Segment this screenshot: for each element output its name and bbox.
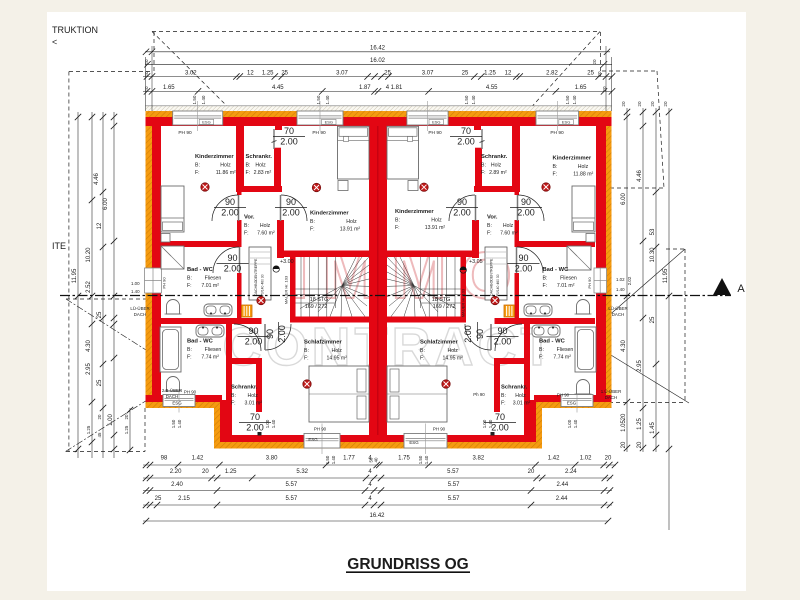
svg-text:1.40: 1.40 bbox=[573, 419, 578, 428]
svg-text:1.50: 1.50 bbox=[316, 95, 321, 104]
svg-text:2.44: 2.44 bbox=[557, 482, 569, 488]
svg-text:20: 20 bbox=[621, 441, 627, 448]
svg-text:70: 70 bbox=[495, 412, 505, 422]
svg-text:B:: B: bbox=[481, 163, 486, 169]
svg-text:Holz: Holz bbox=[220, 163, 231, 169]
svg-text:F:: F: bbox=[244, 231, 249, 237]
svg-text:+3.00: +3.00 bbox=[280, 259, 294, 265]
svg-text:TRUKTION: TRUKTION bbox=[52, 25, 98, 35]
svg-text:Holz: Holz bbox=[578, 164, 589, 170]
svg-text:169 / 272: 169 / 272 bbox=[433, 304, 455, 310]
svg-text:20: 20 bbox=[144, 59, 149, 65]
svg-text:20: 20 bbox=[650, 101, 655, 107]
svg-text:PH 90: PH 90 bbox=[587, 277, 592, 289]
svg-text:90: 90 bbox=[518, 253, 528, 263]
svg-text:40: 40 bbox=[374, 457, 379, 462]
svg-text:25: 25 bbox=[97, 311, 103, 318]
svg-text:3.80: 3.80 bbox=[266, 456, 278, 462]
svg-text:5.57: 5.57 bbox=[286, 482, 298, 488]
svg-text:DACH: DACH bbox=[134, 312, 146, 317]
svg-text:+3.05: +3.05 bbox=[469, 259, 483, 265]
svg-text:90: 90 bbox=[497, 326, 507, 336]
svg-text:1.50: 1.50 bbox=[565, 95, 570, 104]
svg-text:1.00: 1.00 bbox=[482, 419, 487, 428]
svg-text:F:: F: bbox=[187, 355, 192, 361]
svg-text:7.74 m²: 7.74 m² bbox=[553, 355, 571, 361]
svg-text:1.40: 1.40 bbox=[424, 455, 429, 464]
svg-text:1.40: 1.40 bbox=[177, 419, 182, 428]
svg-text:3.01 m²: 3.01 m² bbox=[245, 401, 263, 407]
svg-text:1.40: 1.40 bbox=[325, 95, 330, 104]
svg-text:3.07: 3.07 bbox=[336, 70, 348, 76]
svg-text:DACHBODENTREPPE: DACHBODENTREPPE bbox=[490, 258, 494, 296]
svg-text:F:: F: bbox=[501, 401, 506, 407]
svg-text:169 / 272: 169 / 272 bbox=[305, 304, 327, 310]
svg-text:PH 90: PH 90 bbox=[312, 130, 326, 136]
svg-text:GRUNDRISS OG: GRUNDRISS OG bbox=[347, 556, 468, 573]
svg-text:ITE: ITE bbox=[52, 241, 66, 251]
svg-text:7.01 m²: 7.01 m² bbox=[557, 283, 575, 289]
svg-text:2.00: 2.00 bbox=[517, 208, 535, 218]
svg-text:Holz: Holz bbox=[346, 219, 357, 225]
svg-text:20: 20 bbox=[202, 469, 209, 475]
svg-text:2.40: 2.40 bbox=[171, 482, 183, 488]
svg-text:1.00: 1.00 bbox=[108, 414, 114, 426]
svg-text:12: 12 bbox=[97, 222, 103, 229]
svg-text:MAUER Hr. 103: MAUER Hr. 103 bbox=[461, 288, 466, 317]
svg-text:2.24: 2.24 bbox=[565, 469, 577, 475]
svg-text:B:: B: bbox=[244, 223, 249, 229]
svg-text:2.00: 2.00 bbox=[245, 337, 263, 347]
svg-text:11.88 m²: 11.88 m² bbox=[573, 172, 593, 178]
svg-text:20: 20 bbox=[124, 414, 129, 419]
svg-text:Holz: Holz bbox=[491, 163, 502, 169]
svg-text:25: 25 bbox=[97, 379, 103, 386]
svg-text:Fliesen: Fliesen bbox=[205, 347, 222, 353]
svg-text:53: 53 bbox=[650, 228, 656, 235]
svg-text:F:: F: bbox=[481, 170, 486, 176]
svg-text:2.00: 2.00 bbox=[246, 423, 264, 433]
svg-text:LÜ-ÜBER: LÜ-ÜBER bbox=[130, 306, 149, 311]
svg-text:B:: B: bbox=[304, 348, 309, 354]
svg-text:Schlafzimmer: Schlafzimmer bbox=[420, 340, 458, 346]
svg-text:Kinderzimmer: Kinderzimmer bbox=[310, 211, 349, 217]
svg-text:2.83 m²: 2.83 m² bbox=[254, 170, 272, 176]
svg-text:4.55: 4.55 bbox=[486, 85, 498, 91]
svg-text:1.00: 1.00 bbox=[131, 281, 140, 286]
svg-text:2.00: 2.00 bbox=[463, 325, 473, 343]
svg-text:7.60 m²: 7.60 m² bbox=[500, 231, 518, 237]
svg-text:Schrankr.: Schrankr. bbox=[501, 385, 528, 391]
svg-text:1.40: 1.40 bbox=[131, 289, 140, 294]
svg-text:PH 90: PH 90 bbox=[314, 427, 327, 432]
svg-text:Holz: Holz bbox=[431, 218, 442, 224]
svg-text:90: 90 bbox=[475, 329, 485, 339]
svg-text:4.30: 4.30 bbox=[621, 340, 627, 352]
svg-text:1.65: 1.65 bbox=[163, 85, 175, 91]
svg-text:20: 20 bbox=[144, 71, 149, 77]
svg-text:F:: F: bbox=[395, 225, 400, 231]
svg-text:Holz: Holz bbox=[255, 163, 266, 169]
svg-text:1.05: 1.05 bbox=[621, 420, 627, 432]
svg-text:1.40: 1.40 bbox=[271, 419, 276, 428]
svg-text:5.57: 5.57 bbox=[286, 496, 298, 502]
svg-text:Holz: Holz bbox=[515, 393, 526, 399]
svg-text:PH 90: PH 90 bbox=[557, 393, 570, 398]
svg-text:ESG: ESG bbox=[432, 120, 440, 125]
svg-text:90: 90 bbox=[265, 329, 275, 339]
svg-text:MAUER Hr. 103: MAUER Hr. 103 bbox=[284, 275, 289, 304]
svg-text:2.B-ÜBER: 2.B-ÜBER bbox=[162, 388, 182, 393]
svg-text:2.00: 2.00 bbox=[515, 264, 533, 274]
svg-text:1.40: 1.40 bbox=[471, 95, 476, 104]
svg-text:Schlafzimmer: Schlafzimmer bbox=[304, 340, 342, 346]
svg-text:1.45: 1.45 bbox=[650, 422, 656, 434]
svg-text:25: 25 bbox=[155, 496, 162, 502]
svg-text:1.40: 1.40 bbox=[572, 95, 577, 104]
svg-text:PH 90: PH 90 bbox=[433, 427, 446, 432]
svg-text:Fliesen: Fliesen bbox=[560, 276, 577, 282]
svg-text:F:: F: bbox=[187, 283, 192, 289]
svg-text:1.81: 1.81 bbox=[391, 85, 403, 91]
svg-text:20: 20 bbox=[592, 59, 597, 65]
svg-text:ESG: ESG bbox=[308, 437, 318, 442]
svg-text:1.Ü-ÜBER: 1.Ü-ÜBER bbox=[601, 389, 622, 394]
svg-text:90: 90 bbox=[248, 326, 258, 336]
svg-text:Ph 90: Ph 90 bbox=[473, 392, 485, 397]
svg-text:5.32: 5.32 bbox=[296, 469, 308, 475]
svg-text:ESG: ESG bbox=[202, 120, 210, 125]
svg-text:F:: F: bbox=[310, 227, 315, 233]
svg-text:B:: B: bbox=[246, 163, 251, 169]
svg-text:F:: F: bbox=[543, 283, 548, 289]
svg-text:B:: B: bbox=[395, 218, 400, 224]
svg-text:70: 70 bbox=[284, 126, 294, 136]
svg-text:90: 90 bbox=[457, 197, 467, 207]
svg-text:2.52: 2.52 bbox=[86, 281, 92, 293]
svg-text:25: 25 bbox=[462, 70, 469, 76]
svg-text:Bad - WC: Bad - WC bbox=[543, 267, 570, 273]
svg-text:3.01 m²: 3.01 m² bbox=[513, 401, 531, 407]
svg-text:14.95 m²: 14.95 m² bbox=[443, 356, 464, 362]
svg-text:Holz: Holz bbox=[448, 348, 459, 354]
svg-text:Schrankr.: Schrankr. bbox=[231, 385, 258, 391]
svg-text:Schrankr.: Schrankr. bbox=[246, 154, 273, 160]
svg-text:6.00: 6.00 bbox=[103, 198, 109, 210]
svg-text:7.74 m²: 7.74 m² bbox=[201, 355, 219, 361]
svg-text:1.50: 1.50 bbox=[464, 95, 469, 104]
svg-text:F:: F: bbox=[553, 172, 558, 178]
svg-text:Kinderzimmer: Kinderzimmer bbox=[195, 154, 234, 160]
svg-text:12: 12 bbox=[505, 70, 512, 76]
svg-text:5.57: 5.57 bbox=[448, 482, 460, 488]
svg-text:2.00: 2.00 bbox=[282, 208, 300, 218]
svg-text:ESG: ESG bbox=[562, 120, 570, 125]
svg-text:Bad - WC: Bad - WC bbox=[187, 339, 214, 345]
svg-text:Holz: Holz bbox=[248, 393, 259, 399]
svg-text:Bad - WC: Bad - WC bbox=[539, 339, 566, 345]
svg-text:Kinderzimmer: Kinderzimmer bbox=[395, 209, 434, 215]
svg-text:B:: B: bbox=[187, 347, 192, 353]
svg-text:A: A bbox=[737, 283, 745, 295]
svg-text:16.42: 16.42 bbox=[370, 46, 386, 52]
svg-text:14.95 m²: 14.95 m² bbox=[327, 356, 348, 362]
svg-text:1.42: 1.42 bbox=[548, 456, 560, 462]
svg-text:1.02: 1.02 bbox=[616, 277, 625, 282]
svg-text:2.20: 2.20 bbox=[170, 469, 182, 475]
svg-text:1.75: 1.75 bbox=[398, 456, 410, 462]
svg-text:20: 20 bbox=[621, 413, 627, 420]
svg-text:B:: B: bbox=[231, 393, 236, 399]
svg-text:Vor.: Vor. bbox=[487, 215, 498, 221]
svg-text:PH 90: PH 90 bbox=[178, 130, 192, 136]
svg-text:Kinderzimmer: Kinderzimmer bbox=[553, 156, 592, 162]
svg-text:20: 20 bbox=[97, 414, 102, 419]
svg-text:18 STG: 18 STG bbox=[310, 297, 329, 303]
svg-text:1.25: 1.25 bbox=[484, 70, 496, 76]
svg-text:B:: B: bbox=[420, 348, 425, 354]
svg-text:DACH: DACH bbox=[605, 395, 617, 400]
svg-text:1.00: 1.00 bbox=[567, 419, 572, 428]
svg-text:1.40: 1.40 bbox=[331, 455, 336, 464]
svg-text:2.00: 2.00 bbox=[494, 337, 512, 347]
svg-text:45: 45 bbox=[97, 432, 102, 437]
svg-text:1.25: 1.25 bbox=[225, 469, 237, 475]
svg-text:B:: B: bbox=[553, 164, 558, 170]
svg-text:12: 12 bbox=[247, 70, 254, 76]
svg-text:2.02: 2.02 bbox=[627, 276, 632, 285]
svg-text:20: 20 bbox=[605, 456, 612, 462]
svg-text:2.89 m²: 2.89 m² bbox=[489, 170, 507, 176]
svg-text:2.95: 2.95 bbox=[86, 363, 92, 375]
svg-text:90: 90 bbox=[286, 197, 296, 207]
svg-text:Holz: Holz bbox=[332, 348, 343, 354]
svg-text:1.00: 1.00 bbox=[265, 419, 270, 428]
svg-text:70: 70 bbox=[461, 126, 471, 136]
svg-text:PH 90: PH 90 bbox=[428, 130, 442, 136]
svg-text:F:: F: bbox=[246, 170, 251, 176]
svg-text:10.20: 10.20 bbox=[86, 247, 92, 263]
svg-text:PH 90: PH 90 bbox=[162, 277, 167, 289]
svg-text:PH 90: PH 90 bbox=[550, 130, 564, 136]
svg-text:90: 90 bbox=[225, 197, 235, 207]
svg-text:2.00: 2.00 bbox=[224, 264, 242, 274]
svg-text:1.50: 1.50 bbox=[171, 419, 176, 428]
svg-text:LÜ-ÜBER: LÜ-ÜBER bbox=[608, 306, 627, 311]
svg-text:F:: F: bbox=[195, 170, 200, 176]
svg-text:2.00: 2.00 bbox=[221, 208, 239, 218]
svg-text:20: 20 bbox=[144, 86, 149, 92]
svg-text:20: 20 bbox=[528, 469, 535, 475]
svg-text:F:: F: bbox=[231, 401, 236, 407]
svg-text:25: 25 bbox=[384, 70, 391, 76]
svg-text:25: 25 bbox=[587, 70, 594, 76]
svg-text:25: 25 bbox=[650, 316, 656, 323]
svg-text:11.95: 11.95 bbox=[72, 268, 78, 283]
svg-text:13.91 m²: 13.91 m² bbox=[425, 225, 446, 231]
svg-text:16.02: 16.02 bbox=[370, 58, 386, 64]
svg-text:16.42: 16.42 bbox=[369, 513, 385, 519]
svg-text:4.45: 4.45 bbox=[272, 85, 284, 91]
svg-text:1.50: 1.50 bbox=[192, 95, 197, 104]
svg-text:1.25: 1.25 bbox=[86, 425, 91, 434]
svg-text:B:: B: bbox=[487, 223, 492, 229]
svg-text:B:: B: bbox=[195, 163, 200, 169]
svg-text:1.40: 1.40 bbox=[201, 95, 206, 104]
svg-text:20: 20 bbox=[597, 71, 602, 77]
svg-text:1.02: 1.02 bbox=[580, 456, 592, 462]
svg-text:7.60 m²: 7.60 m² bbox=[257, 231, 275, 237]
svg-text:ESG: ESG bbox=[325, 120, 333, 125]
svg-text:2.00: 2.00 bbox=[277, 325, 287, 343]
svg-text:DACHBODENTREPPE: DACHBODENTREPPE bbox=[254, 258, 258, 296]
svg-text:11.86 m²: 11.86 m² bbox=[216, 170, 236, 176]
svg-text:B:: B: bbox=[501, 393, 506, 399]
svg-text:1.42: 1.42 bbox=[192, 456, 204, 462]
svg-text:Vor.: Vor. bbox=[244, 215, 255, 221]
svg-text:18 STG: 18 STG bbox=[432, 297, 451, 303]
svg-text:F:: F: bbox=[487, 231, 492, 237]
svg-text:20: 20 bbox=[637, 101, 642, 107]
svg-text:2.44: 2.44 bbox=[556, 496, 568, 502]
svg-text:4.46: 4.46 bbox=[94, 173, 100, 185]
svg-text:1.40: 1.40 bbox=[488, 419, 493, 428]
svg-text:7.01 m²: 7.01 m² bbox=[201, 283, 219, 289]
svg-text:Fliesen: Fliesen bbox=[205, 276, 222, 282]
svg-text:Schrankr.: Schrankr. bbox=[481, 154, 508, 160]
svg-text:20: 20 bbox=[663, 101, 668, 107]
svg-text:1.25: 1.25 bbox=[124, 425, 129, 434]
svg-text:2.82: 2.82 bbox=[546, 70, 558, 76]
svg-text:PH 90: PH 90 bbox=[184, 390, 197, 395]
svg-text:98: 98 bbox=[161, 456, 168, 462]
svg-text:Holz: Holz bbox=[260, 223, 271, 229]
svg-text:Holz: Holz bbox=[503, 223, 514, 229]
svg-text:B:: B: bbox=[187, 276, 192, 282]
svg-text:Bad - WC: Bad - WC bbox=[187, 267, 214, 273]
svg-text:1.87: 1.87 bbox=[359, 85, 371, 91]
svg-text:70: 70 bbox=[250, 412, 260, 422]
svg-text:1.25: 1.25 bbox=[637, 418, 643, 430]
svg-text:3.82: 3.82 bbox=[473, 456, 485, 462]
svg-text:1.77: 1.77 bbox=[343, 456, 355, 462]
svg-text:DACH: DACH bbox=[166, 394, 178, 399]
svg-text:3.02: 3.02 bbox=[185, 70, 197, 76]
svg-text:2.95: 2.95 bbox=[637, 360, 643, 372]
svg-text:1.25: 1.25 bbox=[262, 70, 274, 76]
svg-text:90: 90 bbox=[227, 253, 237, 263]
svg-text:6.00: 6.00 bbox=[621, 193, 627, 205]
svg-text:20: 20 bbox=[621, 101, 626, 107]
svg-text:B:: B: bbox=[543, 276, 548, 282]
svg-text:F:: F: bbox=[420, 356, 425, 362]
svg-text:B:: B: bbox=[310, 219, 315, 225]
svg-text:4.46: 4.46 bbox=[637, 170, 643, 182]
svg-text:2.00: 2.00 bbox=[457, 137, 475, 147]
svg-text:11.95: 11.95 bbox=[663, 268, 669, 283]
svg-text:ESG: ESG bbox=[172, 401, 182, 406]
svg-text:2.00: 2.00 bbox=[453, 208, 471, 218]
svg-text:2.00: 2.00 bbox=[280, 137, 298, 147]
svg-text:<: < bbox=[52, 37, 57, 47]
svg-text:90: 90 bbox=[521, 197, 531, 207]
svg-text:1.50: 1.50 bbox=[325, 455, 330, 464]
svg-text:1.40: 1.40 bbox=[616, 287, 625, 292]
svg-text:13.91 m²: 13.91 m² bbox=[340, 227, 361, 233]
svg-text:3.07: 3.07 bbox=[422, 70, 434, 76]
svg-text:20: 20 bbox=[637, 441, 643, 448]
svg-text:F:: F: bbox=[539, 355, 544, 361]
svg-text:5.57: 5.57 bbox=[447, 469, 459, 475]
svg-text:5.57: 5.57 bbox=[448, 496, 460, 502]
svg-text:ESG: ESG bbox=[567, 401, 577, 406]
svg-text:10.30: 10.30 bbox=[650, 247, 656, 263]
svg-text:B:: B: bbox=[539, 347, 544, 353]
svg-text:1.50: 1.50 bbox=[418, 455, 423, 464]
svg-text:ESG: ESG bbox=[409, 440, 419, 445]
svg-text:2.15: 2.15 bbox=[178, 496, 190, 502]
svg-text:4.30: 4.30 bbox=[86, 340, 92, 352]
svg-text:DACH: DACH bbox=[612, 312, 624, 317]
svg-text:25: 25 bbox=[281, 70, 288, 76]
svg-text:1.65: 1.65 bbox=[575, 85, 587, 91]
svg-text:70/140 460 30: 70/140 460 30 bbox=[496, 274, 500, 296]
svg-text:70/140 460 30: 70/140 460 30 bbox=[261, 274, 265, 296]
svg-text:2.00: 2.00 bbox=[491, 423, 509, 433]
svg-text:Fliesen: Fliesen bbox=[557, 347, 574, 353]
svg-text:F:: F: bbox=[304, 356, 309, 362]
